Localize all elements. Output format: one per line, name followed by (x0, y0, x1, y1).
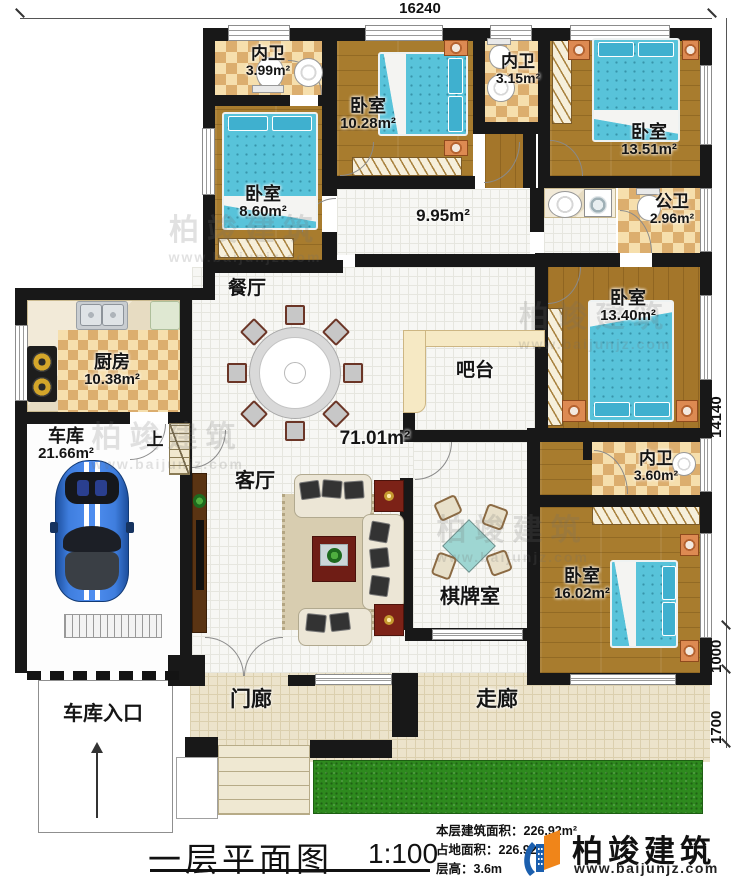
bed5-wardrobe (592, 505, 700, 525)
bed3-pillow-1 (228, 116, 268, 131)
bed1-nightstand-1 (444, 40, 468, 56)
label-bed5: 卧室 16.02m² (554, 566, 610, 603)
room-name: 公卫 (650, 192, 694, 211)
wall-bed3-bottom (203, 260, 343, 273)
wall-corridor-south (355, 254, 535, 267)
room-name: 吧台 (456, 360, 494, 381)
plan-title: 一层平面图 (148, 833, 333, 881)
dining-chair-e (343, 363, 363, 383)
dining-chair-w (227, 363, 247, 383)
bath1-basin (294, 58, 323, 87)
room-name: 车库 (38, 426, 94, 446)
room-name: 门廊 (230, 688, 272, 711)
bed4-nightstand-2 (676, 400, 698, 422)
window-top-2 (365, 25, 443, 41)
title-underline (150, 869, 430, 872)
garage-door-dashed-line (27, 671, 182, 680)
room-area: 13.51m² (621, 142, 677, 159)
bed3-pillow-2 (272, 116, 312, 131)
bed2-nightstand-1 (568, 40, 590, 60)
dim-right-low: 1700 (708, 676, 725, 744)
wall-bed2-bottom (538, 176, 705, 188)
bed4-pillow-2 (634, 402, 670, 417)
burner-1 (32, 352, 52, 372)
label-bed3: 卧室 8.60m² (239, 184, 287, 221)
bed3-wardrobe (218, 238, 294, 258)
window-right-1 (700, 65, 712, 145)
label-bar: 吧台 (456, 360, 494, 381)
washing-machine-drum (589, 196, 607, 214)
bath1-toilet-tank (252, 85, 284, 93)
stat-value: 3.6m (474, 862, 503, 876)
bath2-toilet-tank (487, 38, 511, 45)
bed4-pillow-1 (594, 402, 630, 417)
label-stairs-up: 上 (147, 430, 164, 449)
car-seat-1 (77, 480, 89, 496)
sink-bowl-left (80, 304, 102, 326)
room-area: 16.02m² (554, 586, 610, 603)
dim-tick (707, 8, 717, 18)
label-living: 客厅 (235, 470, 275, 492)
area-value: 71.01m² (340, 428, 411, 449)
room-area: 8.60m² (239, 204, 287, 221)
side-table-1-ornament (384, 491, 394, 501)
wall-v2 (473, 28, 485, 134)
wall-bed4-bottom (527, 428, 705, 442)
label-walkway: 走廊 (476, 688, 518, 712)
wall-pub-bottom-b (652, 253, 705, 267)
window-right-4 (700, 438, 712, 492)
cabinet-plant (193, 494, 206, 508)
room-area: 3.15m² (496, 71, 540, 87)
plan-scale: 1:100 (368, 838, 438, 870)
label-bath2: 内卫 3.15m² (496, 52, 540, 87)
porch-wall-south (310, 740, 392, 758)
stat-label: 本层建筑面积： (436, 824, 524, 838)
brand-logo-icon (520, 826, 568, 880)
porch-pillar-base (176, 757, 218, 819)
bed1-pillow-2 (448, 96, 463, 132)
cutting-board (150, 301, 180, 330)
wall-chess-top (400, 430, 545, 442)
label-pub-bath: 公卫 2.96m² (650, 192, 694, 227)
label-bath1: 内卫 3.99m² (246, 44, 290, 79)
label-porch: 门廊 (230, 688, 272, 712)
room-name: 内卫 (496, 52, 540, 71)
car-hood (65, 552, 119, 590)
bed2-nightstand-2 (682, 40, 699, 60)
label-dining: 餐厅 (228, 278, 266, 299)
pub-lobby-basin (548, 191, 582, 218)
label-hall-area: 71.01m² (340, 428, 411, 449)
room-area: 10.38m² (84, 372, 140, 389)
room-name: 客厅 (235, 470, 275, 492)
room-area: 21.66m² (38, 446, 94, 463)
sofa-cushion-4 (368, 521, 390, 544)
room-area: 13.40m² (600, 308, 656, 325)
label-kitchen: 厨房 10.38m² (84, 352, 140, 389)
room-name: 卧室 (621, 122, 677, 142)
dim-right-main: 14140 (708, 338, 725, 438)
label-chess: 棋牌室 (440, 586, 500, 608)
driveway-arrow-line (96, 752, 98, 818)
dim-line-top (20, 18, 712, 19)
bed5-nightstand-1 (680, 534, 699, 556)
driveway-arrow-head-icon (91, 742, 103, 753)
wall-pub-bottom-a (535, 253, 620, 267)
room-area: 10.28m² (340, 116, 396, 133)
car-windshield (63, 526, 121, 552)
car-seat-2 (95, 480, 107, 496)
window-right-2 (700, 188, 712, 252)
stat-label: 层高： (436, 862, 474, 876)
sofa-cushion-6 (369, 575, 391, 597)
wall-bed4-left (535, 267, 548, 428)
bed1-nightstand-2 (444, 140, 468, 156)
wall-bath3-bottom (527, 495, 705, 507)
wall-bath1-a (203, 95, 290, 106)
window-top-1 (228, 25, 290, 41)
staircase (169, 423, 190, 475)
side-table-2-ornament (384, 615, 394, 625)
label-corridor-area: 9.95m² (416, 206, 470, 225)
label-bed1: 卧室 10.28m² (340, 96, 396, 133)
room-name: 车库入口 (63, 703, 143, 725)
sofa-cushion-8 (329, 612, 351, 632)
area-value: 9.95m² (416, 206, 470, 225)
bed4-nightstand-1 (562, 400, 586, 422)
window-right-5 (700, 533, 712, 638)
room-name: 走廊 (476, 688, 518, 711)
sofa-cushion-5 (369, 547, 390, 569)
room-name: 卧室 (600, 288, 656, 308)
room-name: 卧室 (554, 566, 610, 586)
room-name: 内卫 (246, 44, 290, 63)
room-name: 卧室 (340, 96, 396, 116)
lawn (313, 760, 703, 814)
room-name: 卧室 (239, 184, 287, 204)
dining-chair-s (285, 421, 305, 441)
tv-symbol (196, 520, 204, 590)
garage-door-slats (64, 614, 162, 638)
wall-lobby-left (530, 188, 544, 232)
floor-plan-canvas: 柏竣建筑 www.baijunjz.com 柏竣建筑 www.baijunjz.… (0, 0, 750, 885)
room-area: 2.96m² (650, 211, 694, 227)
dim-tick (15, 8, 25, 18)
car-mirror-left (50, 522, 58, 533)
room-name: 内卫 (634, 449, 678, 468)
dining-table-hub (284, 362, 306, 384)
entry-steps (218, 745, 310, 815)
bed5-pillow-2 (662, 602, 676, 636)
wall-bed5-left (527, 442, 540, 685)
wall-kitchen-top (15, 288, 207, 300)
coffee-table-plant (327, 548, 342, 563)
label-garage-entry: 车库入口 (63, 703, 143, 725)
window-chess-south (432, 629, 523, 640)
dim-right-mid: 1000 (708, 627, 725, 673)
wall-vestibule-right (523, 130, 536, 188)
window-bed5-south (570, 674, 676, 685)
burner-2 (32, 377, 52, 397)
car-rear-window (65, 472, 119, 504)
bed5-pillow-1 (662, 566, 676, 600)
stairs-up-text: 上 (147, 430, 164, 449)
porch-pillar-right (392, 673, 418, 737)
bed2-pillow-1 (598, 42, 634, 57)
window-living-south (315, 674, 392, 685)
bed5-nightstand-2 (680, 640, 699, 662)
dim-line-right (726, 18, 727, 748)
sofa-cushion-2 (321, 479, 342, 499)
window-left-1 (202, 128, 215, 195)
sink-bowl-right (102, 304, 124, 326)
porch-pillar-left (185, 737, 218, 757)
wall-bath3-stub (583, 442, 592, 460)
room-area: 3.60m² (634, 468, 678, 484)
sofa-cushion-7 (305, 613, 327, 633)
stat-label: 占地面积： (436, 843, 499, 857)
room-name: 棋牌室 (440, 586, 500, 608)
bed2-pillow-2 (638, 42, 674, 57)
label-garage: 车库 21.66m² (38, 426, 94, 463)
wall-mid-vertical (180, 300, 192, 655)
wall-bed1-bottom (337, 176, 475, 189)
sofa-cushion-3 (343, 480, 364, 499)
sofa-cushion-1 (299, 480, 321, 501)
bed1-pillow-1 (448, 58, 463, 94)
wall-living-bottom-b (288, 675, 315, 686)
room-name: 餐厅 (228, 278, 266, 299)
bar-counter-leg (403, 330, 426, 413)
bed5-sheet-fold (612, 562, 636, 646)
room-name: 厨房 (84, 352, 140, 372)
dining-chair-n (285, 305, 305, 325)
car-mirror-right (126, 522, 134, 533)
car-symbol (55, 460, 129, 602)
brand-site: www.baijunjz.com (574, 860, 719, 876)
label-bed2: 卧室 13.51m² (621, 122, 677, 159)
label-bath3: 内卫 3.60m² (634, 449, 678, 484)
room-area: 3.99m² (246, 63, 290, 79)
wall-kitchen-bottom-a (27, 412, 130, 424)
wall-v1-a (322, 28, 337, 196)
dim-top-value: 16240 (380, 0, 460, 17)
label-bed4: 卧室 13.40m² (600, 288, 656, 325)
wall-bed2-left (538, 28, 550, 178)
